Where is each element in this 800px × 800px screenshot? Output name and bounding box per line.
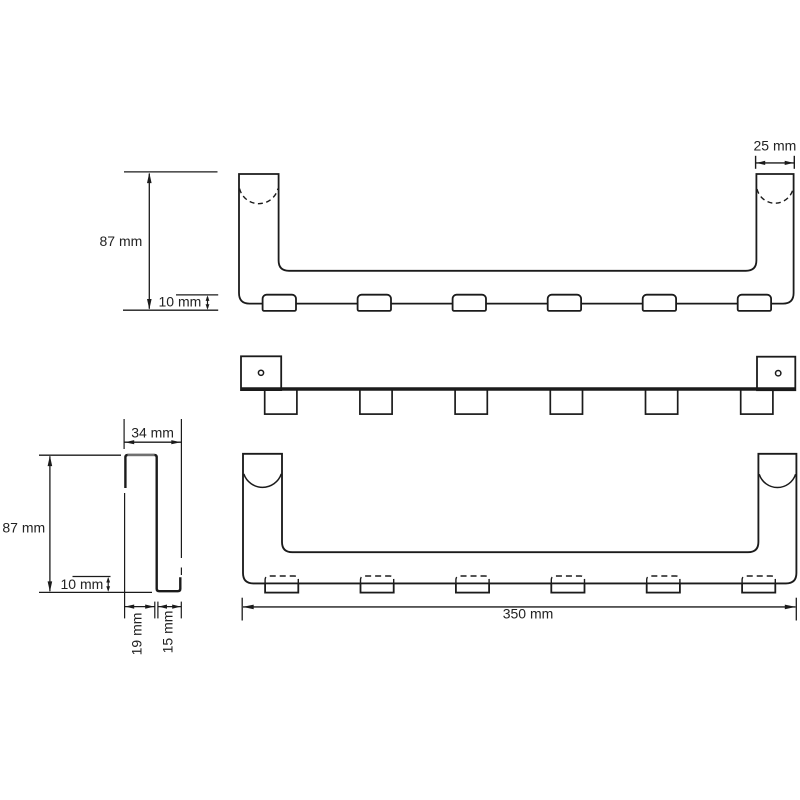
svg-text:350 mm: 350 mm — [503, 606, 554, 622]
svg-text:10 mm: 10 mm — [61, 576, 104, 592]
svg-text:15 mm: 15 mm — [160, 611, 176, 654]
svg-text:10 mm: 10 mm — [159, 294, 202, 310]
svg-text:87 mm: 87 mm — [100, 233, 143, 249]
svg-text:25 mm: 25 mm — [754, 138, 797, 154]
svg-text:34 mm: 34 mm — [131, 424, 174, 440]
svg-text:19 mm: 19 mm — [129, 613, 145, 656]
svg-text:87 mm: 87 mm — [2, 519, 45, 535]
